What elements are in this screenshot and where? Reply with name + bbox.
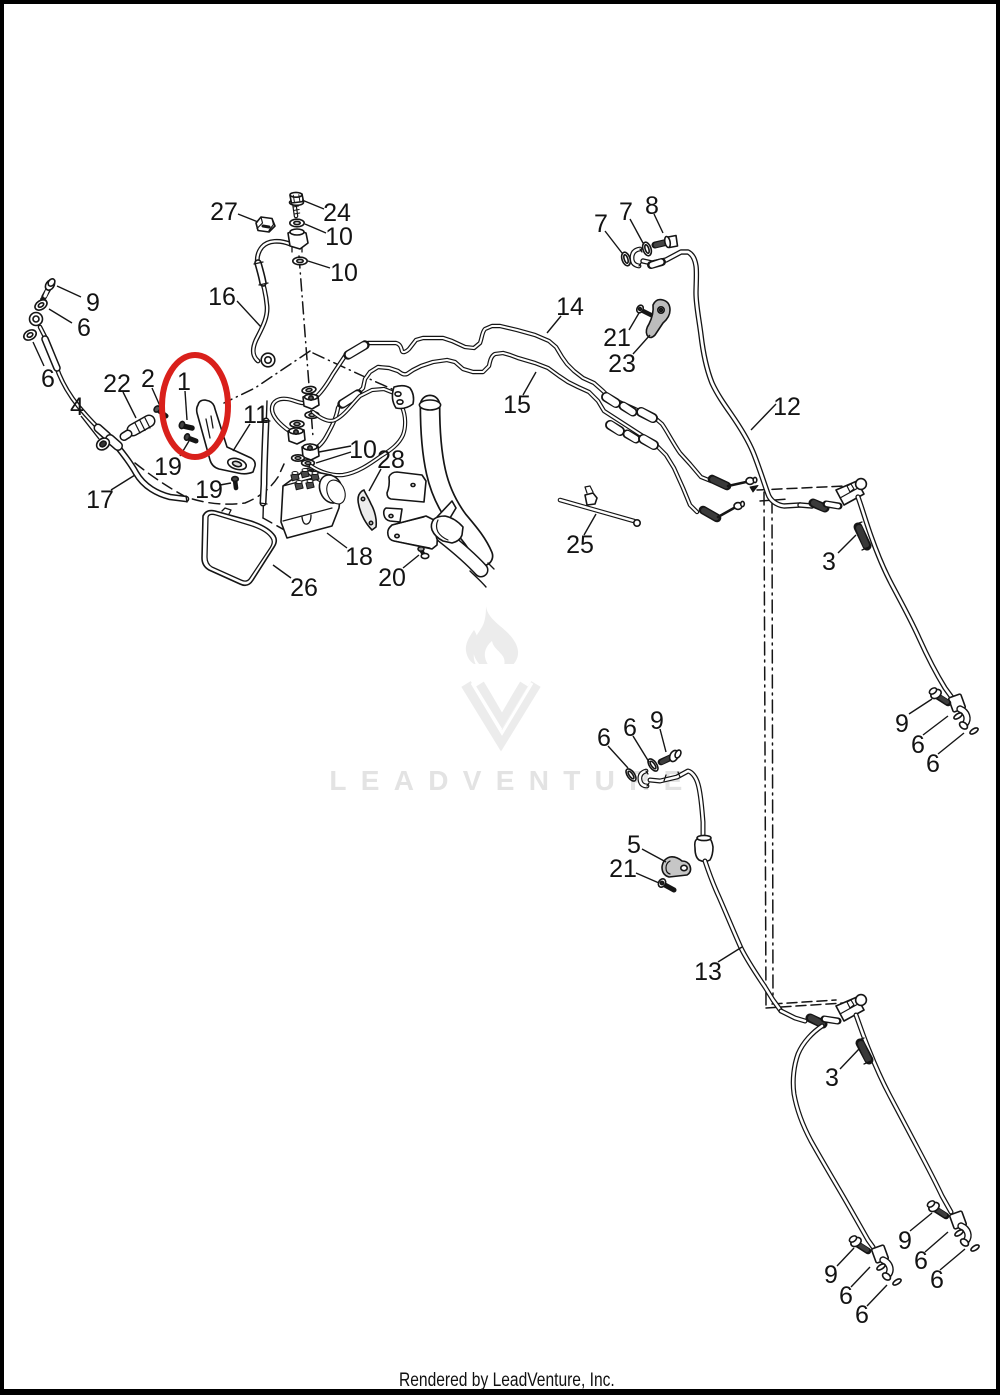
svg-text:4: 4 (70, 393, 84, 421)
svg-text:6: 6 (911, 731, 925, 759)
svg-text:6: 6 (855, 1301, 869, 1329)
svg-text:21: 21 (603, 324, 631, 352)
svg-text:15: 15 (503, 391, 531, 419)
svg-text:9: 9 (824, 1261, 838, 1289)
svg-text:19: 19 (154, 453, 182, 481)
svg-text:6: 6 (41, 365, 55, 393)
svg-text:6: 6 (623, 714, 637, 742)
svg-text:12: 12 (773, 393, 801, 421)
svg-text:Rendered by LeadVenture, Inc.: Rendered by LeadVenture, Inc. (399, 1368, 615, 1390)
svg-text:26: 26 (290, 574, 318, 602)
svg-text:10: 10 (330, 259, 358, 287)
svg-text:6: 6 (926, 750, 940, 778)
svg-text:27: 27 (210, 198, 238, 226)
svg-text:6: 6 (839, 1282, 853, 1310)
svg-text:2: 2 (141, 365, 155, 393)
svg-text:3: 3 (825, 1064, 839, 1092)
svg-text:19: 19 (195, 476, 223, 504)
svg-text:9: 9 (895, 710, 909, 738)
svg-text:20: 20 (378, 564, 406, 592)
svg-text:16: 16 (208, 283, 236, 311)
svg-text:21: 21 (609, 855, 637, 883)
svg-text:28: 28 (377, 446, 405, 474)
svg-text:18: 18 (345, 543, 373, 571)
svg-text:9: 9 (898, 1227, 912, 1255)
svg-text:22: 22 (103, 370, 131, 398)
svg-text:6: 6 (597, 724, 611, 752)
svg-text:7: 7 (594, 210, 608, 238)
svg-text:9: 9 (650, 707, 664, 735)
svg-text:1: 1 (177, 368, 191, 396)
svg-text:17: 17 (86, 486, 114, 514)
svg-text:14: 14 (556, 293, 584, 321)
svg-text:25: 25 (566, 531, 594, 559)
svg-text:11: 11 (243, 401, 269, 429)
svg-text:8: 8 (645, 192, 659, 220)
svg-text:6: 6 (914, 1247, 928, 1275)
svg-text:23: 23 (608, 350, 636, 378)
svg-text:10: 10 (325, 223, 353, 251)
svg-text:10: 10 (349, 436, 377, 464)
svg-text:9: 9 (86, 289, 100, 317)
svg-text:13: 13 (694, 958, 722, 986)
svg-text:6: 6 (77, 314, 91, 342)
svg-text:6: 6 (930, 1266, 944, 1294)
svg-text:3: 3 (822, 548, 836, 576)
svg-text:7: 7 (619, 198, 633, 226)
